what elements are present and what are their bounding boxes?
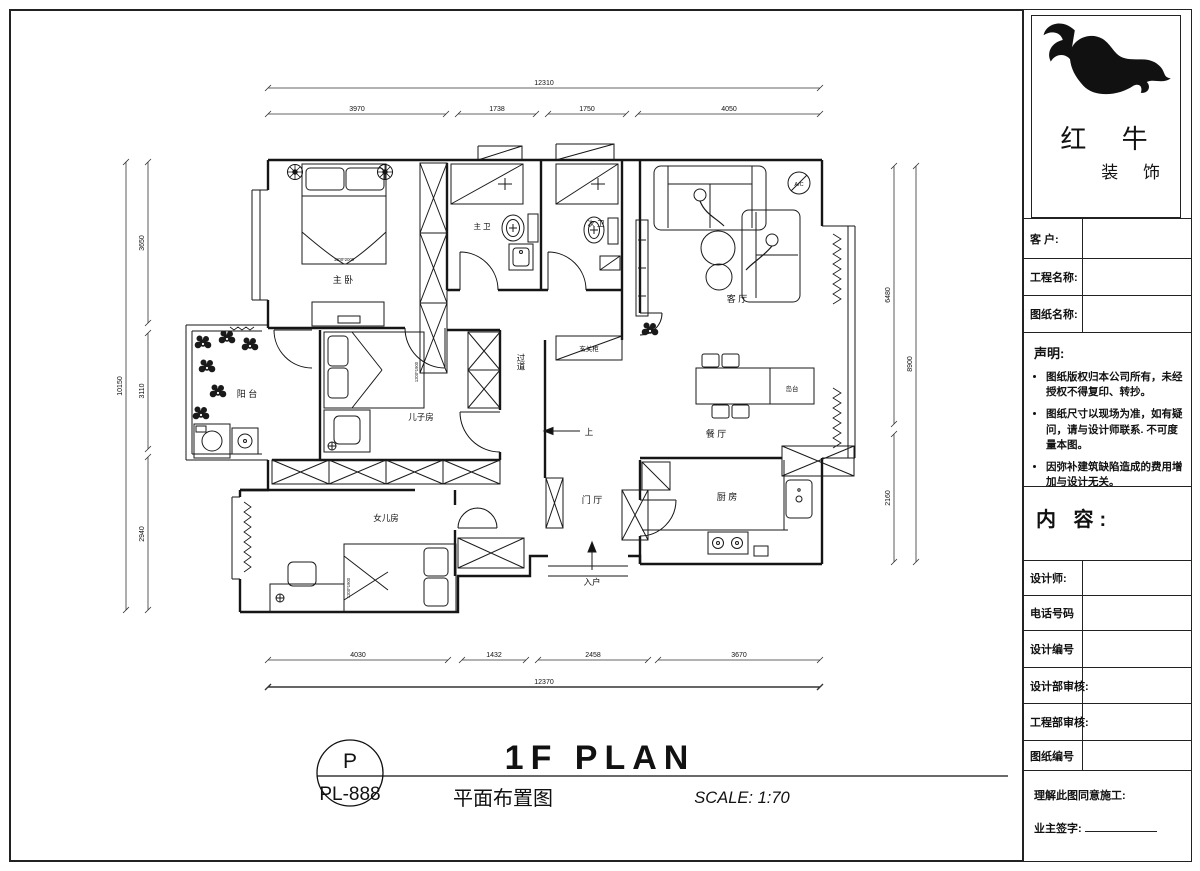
furniture (193, 163, 854, 612)
door-kitchen (640, 500, 676, 536)
field-project-name-label: 工程名称: (1024, 259, 1083, 295)
dim-top-1: 3970 (349, 106, 365, 113)
label-master-bath: 主 卫 (473, 221, 491, 231)
field-eng-review: 工程部审核: (1024, 703, 1191, 740)
bubble-code-top: P (343, 750, 357, 773)
bull-logo-icon (1033, 16, 1179, 112)
statement-box: 声明: 图纸版权归本公司所有，未经授权不得复印、转抄。 图纸尺寸以现场为准，如有… (1024, 332, 1191, 486)
field-drawing-name-value (1083, 296, 1191, 332)
field-designer: 设计师: (1024, 560, 1191, 595)
statement-item: 图纸版权归本公司所有，未经授权不得复印、转抄。 (1046, 370, 1185, 400)
label-up: 上 (585, 427, 594, 437)
window-screen-zigzag (244, 502, 251, 572)
dimension-lines (123, 85, 919, 690)
label-island: 岛台 (786, 384, 799, 393)
dimension-text: 12310 3970 1738 1750 4050 4030 1432 2458… (117, 80, 914, 686)
label-foyer: 门 厅 (582, 494, 603, 505)
field-designer-label: 设计师: (1024, 561, 1083, 595)
sheet-scale: SCALE: 1:70 (694, 789, 790, 807)
field-phone-label: 电话号码 (1024, 596, 1083, 630)
field-customer-value (1083, 219, 1191, 258)
dim-bottom-3: 2458 (585, 652, 601, 659)
field-drawing-no: 图纸编号 (1024, 740, 1191, 770)
dim-top-2: 1738 (489, 106, 505, 113)
approval-line: 理解此图同意施工: (1034, 787, 1185, 803)
entry-steps (548, 566, 628, 576)
content-box: 内 容: (1024, 486, 1191, 560)
signature-blank (1085, 819, 1157, 832)
corridor-column (546, 478, 563, 528)
sheet-border (10, 10, 1191, 861)
shoe-cabinet (622, 490, 648, 540)
second-bath-fixtures (556, 164, 620, 270)
field-phone-value (1083, 596, 1191, 630)
signature-line: 业主签字: (1034, 819, 1185, 836)
son-bed (324, 332, 424, 408)
doors (274, 252, 676, 536)
sheet-title-group: P PL-888 1F PLAN 平面布置图 SCALE: 1:70 (317, 739, 1008, 810)
dim-right-1: 6480 (885, 287, 892, 303)
sheet-title-en: 1F PLAN (505, 739, 696, 777)
washer (194, 424, 230, 458)
label-master-bedroom: 主 卧 (333, 274, 354, 285)
field-drawing-name: 图纸名称: (1024, 295, 1191, 332)
brand-logo-box: 红 牛 装 饰 (1031, 15, 1181, 218)
door-son-room (460, 412, 500, 452)
door-master-bedroom (405, 328, 445, 368)
title-block-rows: 客 户: 工程名称: 图纸名称: 声明: 图纸版权归本公司所有，未经授权不得复印… (1024, 218, 1191, 851)
label-entrance: 入户 (583, 577, 600, 587)
coffee-table-small (706, 264, 732, 290)
field-design-review-label: 设计部审核: (1024, 668, 1083, 703)
drawing-sheet: 主 卧 主 卫 次 卫 客 厅 阳 台 儿子房 过道 玄关柜 餐 厅 岛台 厨 … (0, 0, 1200, 871)
brand-subname: 装 饰 (1032, 158, 1170, 183)
statement-list: 图纸版权归本公司所有，未经授权不得复印、转抄。 图纸尺寸以现场为准，如有疑问，请… (1032, 370, 1185, 491)
label-corridor: 过道 (516, 353, 526, 372)
sheet-title-cn: 平面布置图 (453, 787, 553, 810)
kitchen-sink (786, 480, 812, 518)
title-block: 红 牛 装 饰 客 户: 工程名称: 图纸名称: 声明: 图纸版权归本公司所有，… (1022, 10, 1191, 861)
dim-bottom-2: 1432 (486, 652, 502, 659)
daughter-chair (288, 562, 316, 586)
window-daughter-left (232, 497, 240, 579)
bubble-code-bottom: PL-888 (319, 784, 380, 805)
window-master-left (252, 190, 268, 300)
field-eng-review-label: 工程部审核: (1024, 704, 1083, 740)
field-drawing-no-label: 图纸编号 (1024, 741, 1083, 770)
storage-strip (272, 460, 500, 484)
dim-top-total: 12310 (534, 80, 554, 87)
field-drawing-name-label: 图纸名称: (1024, 296, 1083, 332)
field-project-name-value (1083, 259, 1191, 295)
dim-top-3: 1750 (579, 106, 595, 113)
dim-right-total: 8900 (907, 356, 914, 372)
statement-item: 图纸尺寸以现场为准，如有疑问，请与设计师联系. 不可度量本图。 (1046, 407, 1185, 453)
label-living-room: 客 厅 (727, 293, 748, 304)
floor-plan-drawing: 主 卧 主 卫 次 卫 客 厅 阳 台 儿子房 过道 玄关柜 餐 厅 岛台 厨 … (0, 0, 1200, 871)
shaft-right (556, 144, 614, 160)
dim-bottom-total: 12370 (534, 679, 554, 686)
dresser (312, 302, 384, 326)
dim-left-1: 3650 (139, 235, 146, 251)
label-son-room: 儿子房 (408, 412, 434, 422)
brand-name: 红 牛 (1042, 119, 1180, 156)
shaft-left (478, 146, 522, 160)
field-design-no-label: 设计编号 (1024, 631, 1083, 667)
field-designer-value (1083, 561, 1191, 595)
label-balcony: 阳 台 (237, 388, 258, 399)
field-design-no: 设计编号 (1024, 630, 1191, 667)
dim-top-4: 4050 (721, 106, 737, 113)
label-kitchen: 厨 房 (717, 491, 738, 502)
field-eng-review-value (1083, 704, 1191, 740)
door-balcony (274, 330, 312, 368)
field-phone: 电话号码 (1024, 595, 1191, 630)
label-daughter-bed-size: 1200*1900 (346, 577, 351, 598)
sofa-right (742, 210, 800, 302)
dim-left-2: 3110 (139, 383, 146, 398)
door-master-bath (460, 252, 498, 290)
label-entry-cabinet: 玄关柜 (579, 344, 599, 353)
statement-heading: 声明: (1034, 343, 1185, 362)
field-customer: 客 户: (1024, 218, 1191, 258)
walls (240, 160, 822, 612)
door-second-bath (548, 252, 586, 290)
up-arrow (544, 428, 580, 435)
label-dining-room: 餐 厅 (706, 428, 727, 439)
signature-label: 业主签字: (1034, 823, 1082, 835)
field-customer-label: 客 户: (1024, 219, 1083, 258)
living-furniture (636, 166, 810, 335)
field-design-review: 设计部审核: (1024, 667, 1191, 703)
field-design-review-value (1083, 668, 1191, 703)
field-project-name: 工程名称: (1024, 258, 1191, 295)
content-label: 内 容: (1032, 493, 1185, 532)
dim-right-2: 2160 (885, 490, 892, 506)
dim-left-3: 2940 (139, 526, 146, 542)
kitchen-top-cabinet (782, 446, 854, 476)
field-design-no-value (1083, 631, 1191, 667)
signature-box: 理解此图同意施工: 业主签字: (1024, 770, 1191, 851)
balcony-sink (232, 428, 258, 454)
son-chair (334, 416, 360, 444)
label-ac: A/C (794, 182, 803, 188)
dim-bottom-1: 4030 (350, 652, 366, 659)
master-bath-fixtures (451, 164, 538, 270)
dim-bottom-4: 3670 (731, 652, 747, 659)
door-daughter-double (458, 508, 497, 528)
label-son-bed-size: 1200*1900 (414, 361, 419, 382)
field-drawing-no-value (1083, 741, 1191, 770)
label-master-bed-size: 1800*2000 (334, 257, 355, 262)
dim-left-total: 10150 (117, 376, 124, 396)
coffee-table (701, 231, 735, 265)
label-second-bath: 次 卫 (587, 218, 605, 228)
label-daughter-room: 女儿房 (373, 513, 399, 523)
